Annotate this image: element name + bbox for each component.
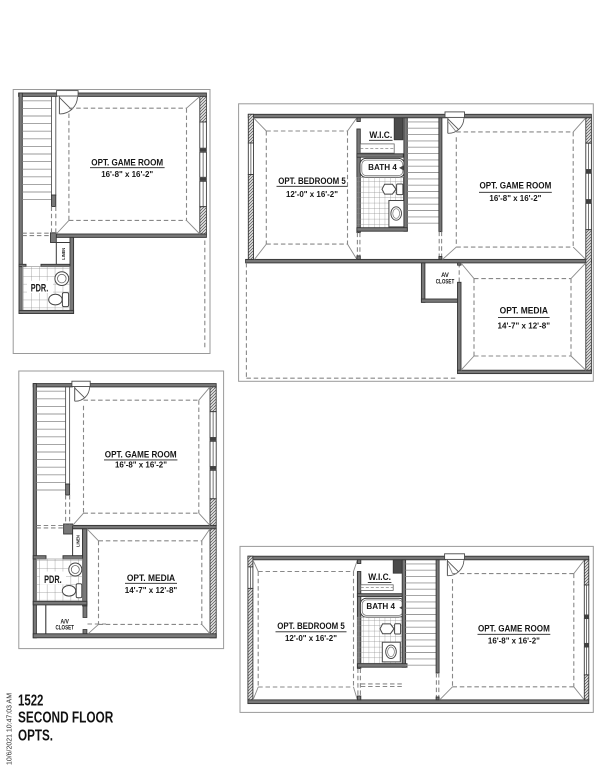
svg-text:OPT. BEDROOM 5: OPT. BEDROOM 5 — [278, 176, 346, 186]
svg-text:CLOSET: CLOSET — [55, 626, 74, 632]
svg-text:BATH 4: BATH 4 — [366, 601, 395, 611]
svg-text:CLOSET: CLOSET — [436, 280, 455, 286]
svg-text:1522: 1522 — [18, 692, 43, 709]
svg-text:16'-8" x 16'-2": 16'-8" x 16'-2" — [101, 169, 153, 179]
svg-text:10/6/2021 10:47:03 AM: 10/6/2021 10:47:03 AM — [7, 693, 14, 765]
svg-text:16'-8" x 16'-2": 16'-8" x 16'-2" — [488, 635, 540, 645]
svg-text:OPT. BEDROOM 5: OPT. BEDROOM 5 — [277, 621, 345, 631]
svg-text:12'-0" x 16'-2": 12'-0" x 16'-2" — [286, 189, 338, 199]
svg-text:AV: AV — [441, 273, 449, 279]
svg-text:W.I.C.: W.I.C. — [369, 130, 392, 140]
svg-text:16'-8" x 16'-2": 16'-8" x 16'-2" — [115, 460, 167, 470]
svg-text:14'-7" x 12'-8": 14'-7" x 12'-8" — [498, 321, 551, 331]
svg-text:W.I.C.: W.I.C. — [368, 572, 391, 582]
svg-text:LINEN: LINEN — [61, 247, 67, 259]
svg-text:OPT. MEDIA: OPT. MEDIA — [500, 305, 549, 315]
svg-text:OPT. GAME ROOM: OPT. GAME ROOM — [91, 157, 163, 167]
svg-text:12'-0" x 16'-2": 12'-0" x 16'-2" — [285, 633, 337, 643]
svg-text:OPT. GAME ROOM: OPT. GAME ROOM — [478, 623, 550, 633]
svg-text:OPTS.: OPTS. — [18, 727, 53, 744]
svg-text:OPT. MEDIA: OPT. MEDIA — [127, 573, 176, 583]
svg-text:LINEN: LINEN — [76, 535, 82, 547]
svg-text:16'-8" x 16'-2": 16'-8" x 16'-2" — [489, 193, 541, 203]
svg-text:A/V: A/V — [60, 620, 69, 626]
svg-text:OPT. GAME ROOM: OPT. GAME ROOM — [480, 181, 552, 191]
svg-text:OPT. GAME ROOM: OPT. GAME ROOM — [105, 450, 177, 460]
svg-text:PDR.: PDR. — [44, 574, 62, 586]
svg-text:14'-7" x 12'-8": 14'-7" x 12'-8" — [125, 585, 178, 595]
svg-text:PDR.: PDR. — [31, 283, 49, 295]
svg-text:SECOND FLOOR: SECOND FLOOR — [18, 709, 114, 726]
svg-text:BATH 4: BATH 4 — [368, 162, 397, 172]
